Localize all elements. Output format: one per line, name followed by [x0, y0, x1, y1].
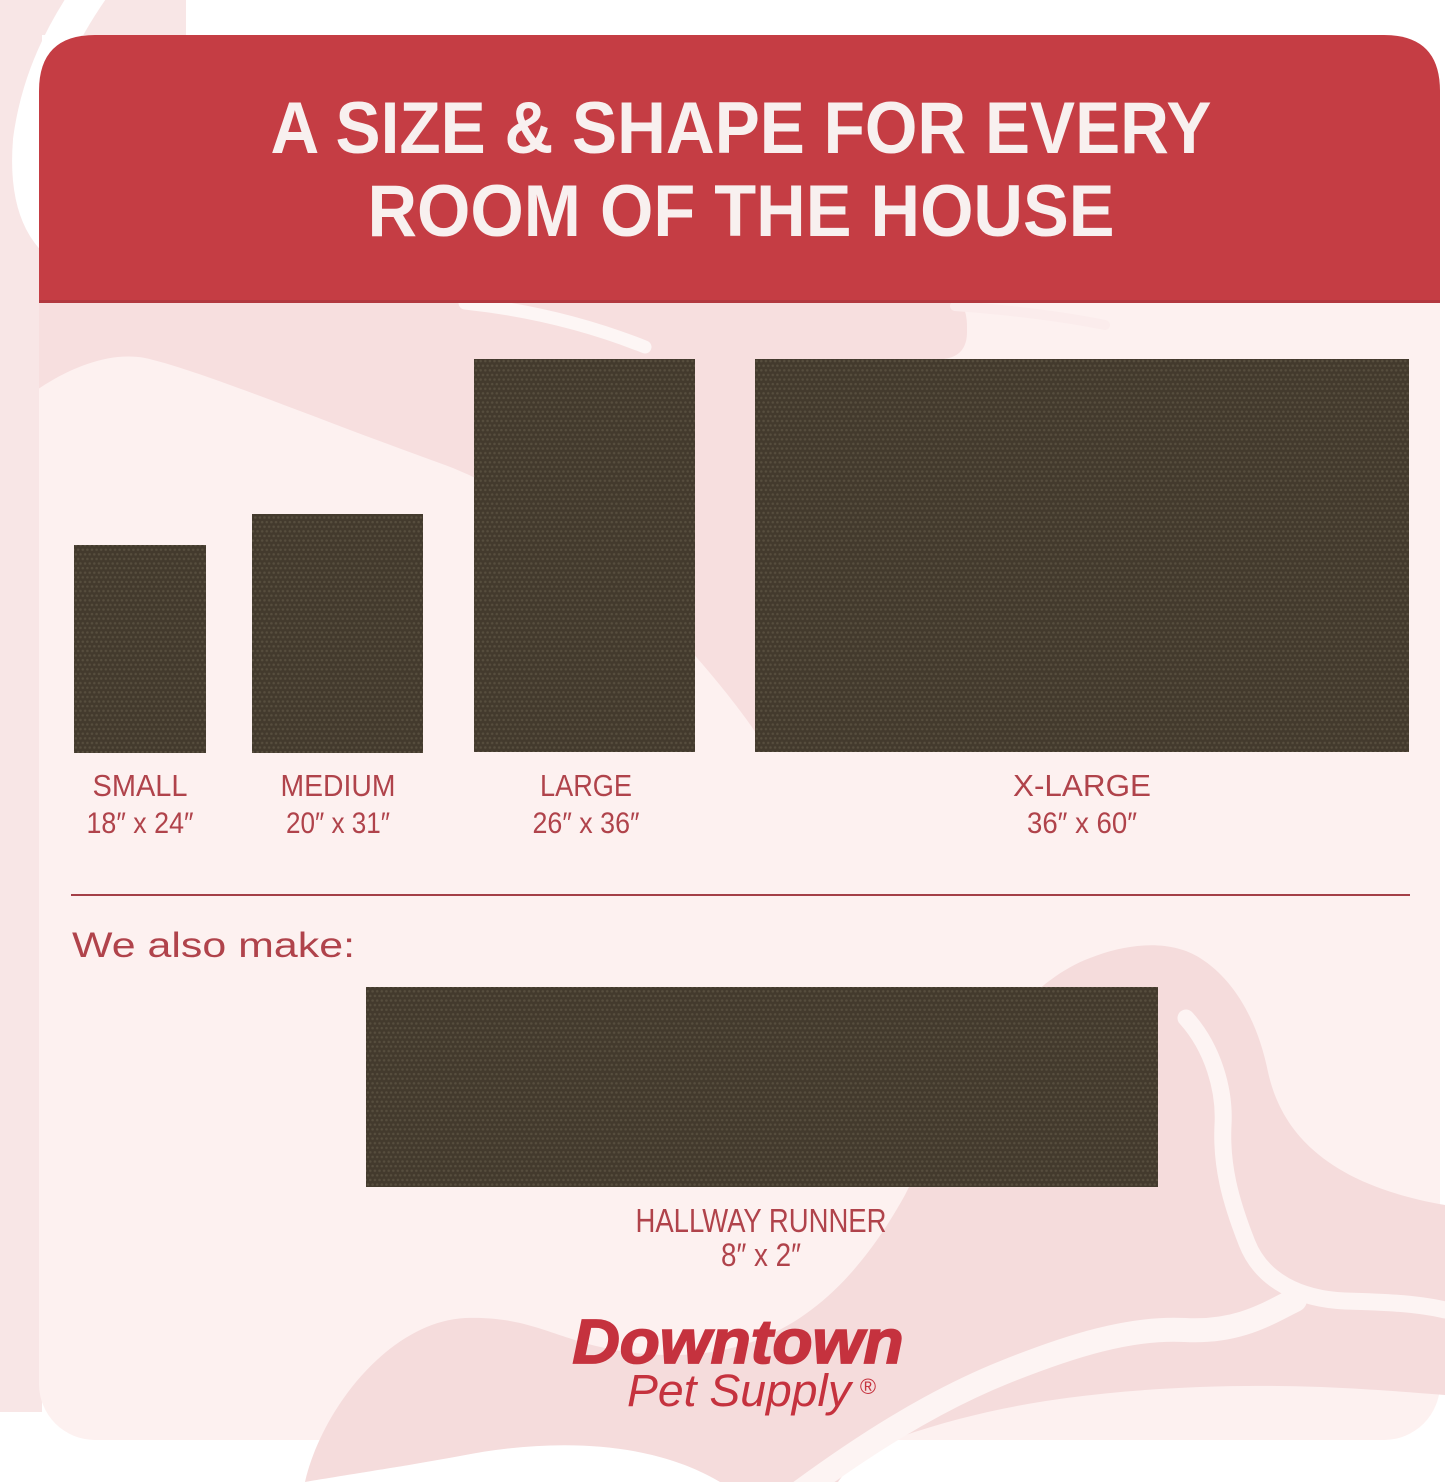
svg-text:A SIZE & SHAPE FOR EVERY: A SIZE & SHAPE FOR EVERY [271, 88, 1212, 169]
svg-text:We also make:: We also make: [72, 926, 355, 965]
svg-text:X-LARGE: X-LARGE [1013, 768, 1151, 803]
svg-text:8″ x 2″: 8″ x 2″ [721, 1237, 801, 1273]
svg-text:26″ x 36″: 26″ x 36″ [533, 807, 640, 840]
svg-text:SMALL: SMALL [93, 768, 188, 803]
svg-text:36″ x 60″: 36″ x 60″ [1027, 807, 1137, 840]
svg-text:20″ x 31″: 20″ x 31″ [286, 807, 390, 840]
svg-text:18″ x 24″: 18″ x 24″ [87, 807, 194, 840]
svg-text:HALLWAY RUNNER: HALLWAY RUNNER [636, 1202, 887, 1239]
svg-text:Pet Supply: Pet Supply [627, 1365, 854, 1416]
svg-text:®: ® [860, 1374, 876, 1399]
svg-text:LARGE: LARGE [540, 768, 632, 803]
svg-text:ROOM OF THE HOUSE: ROOM OF THE HOUSE [368, 171, 1115, 252]
svg-text:MEDIUM: MEDIUM [281, 768, 396, 803]
